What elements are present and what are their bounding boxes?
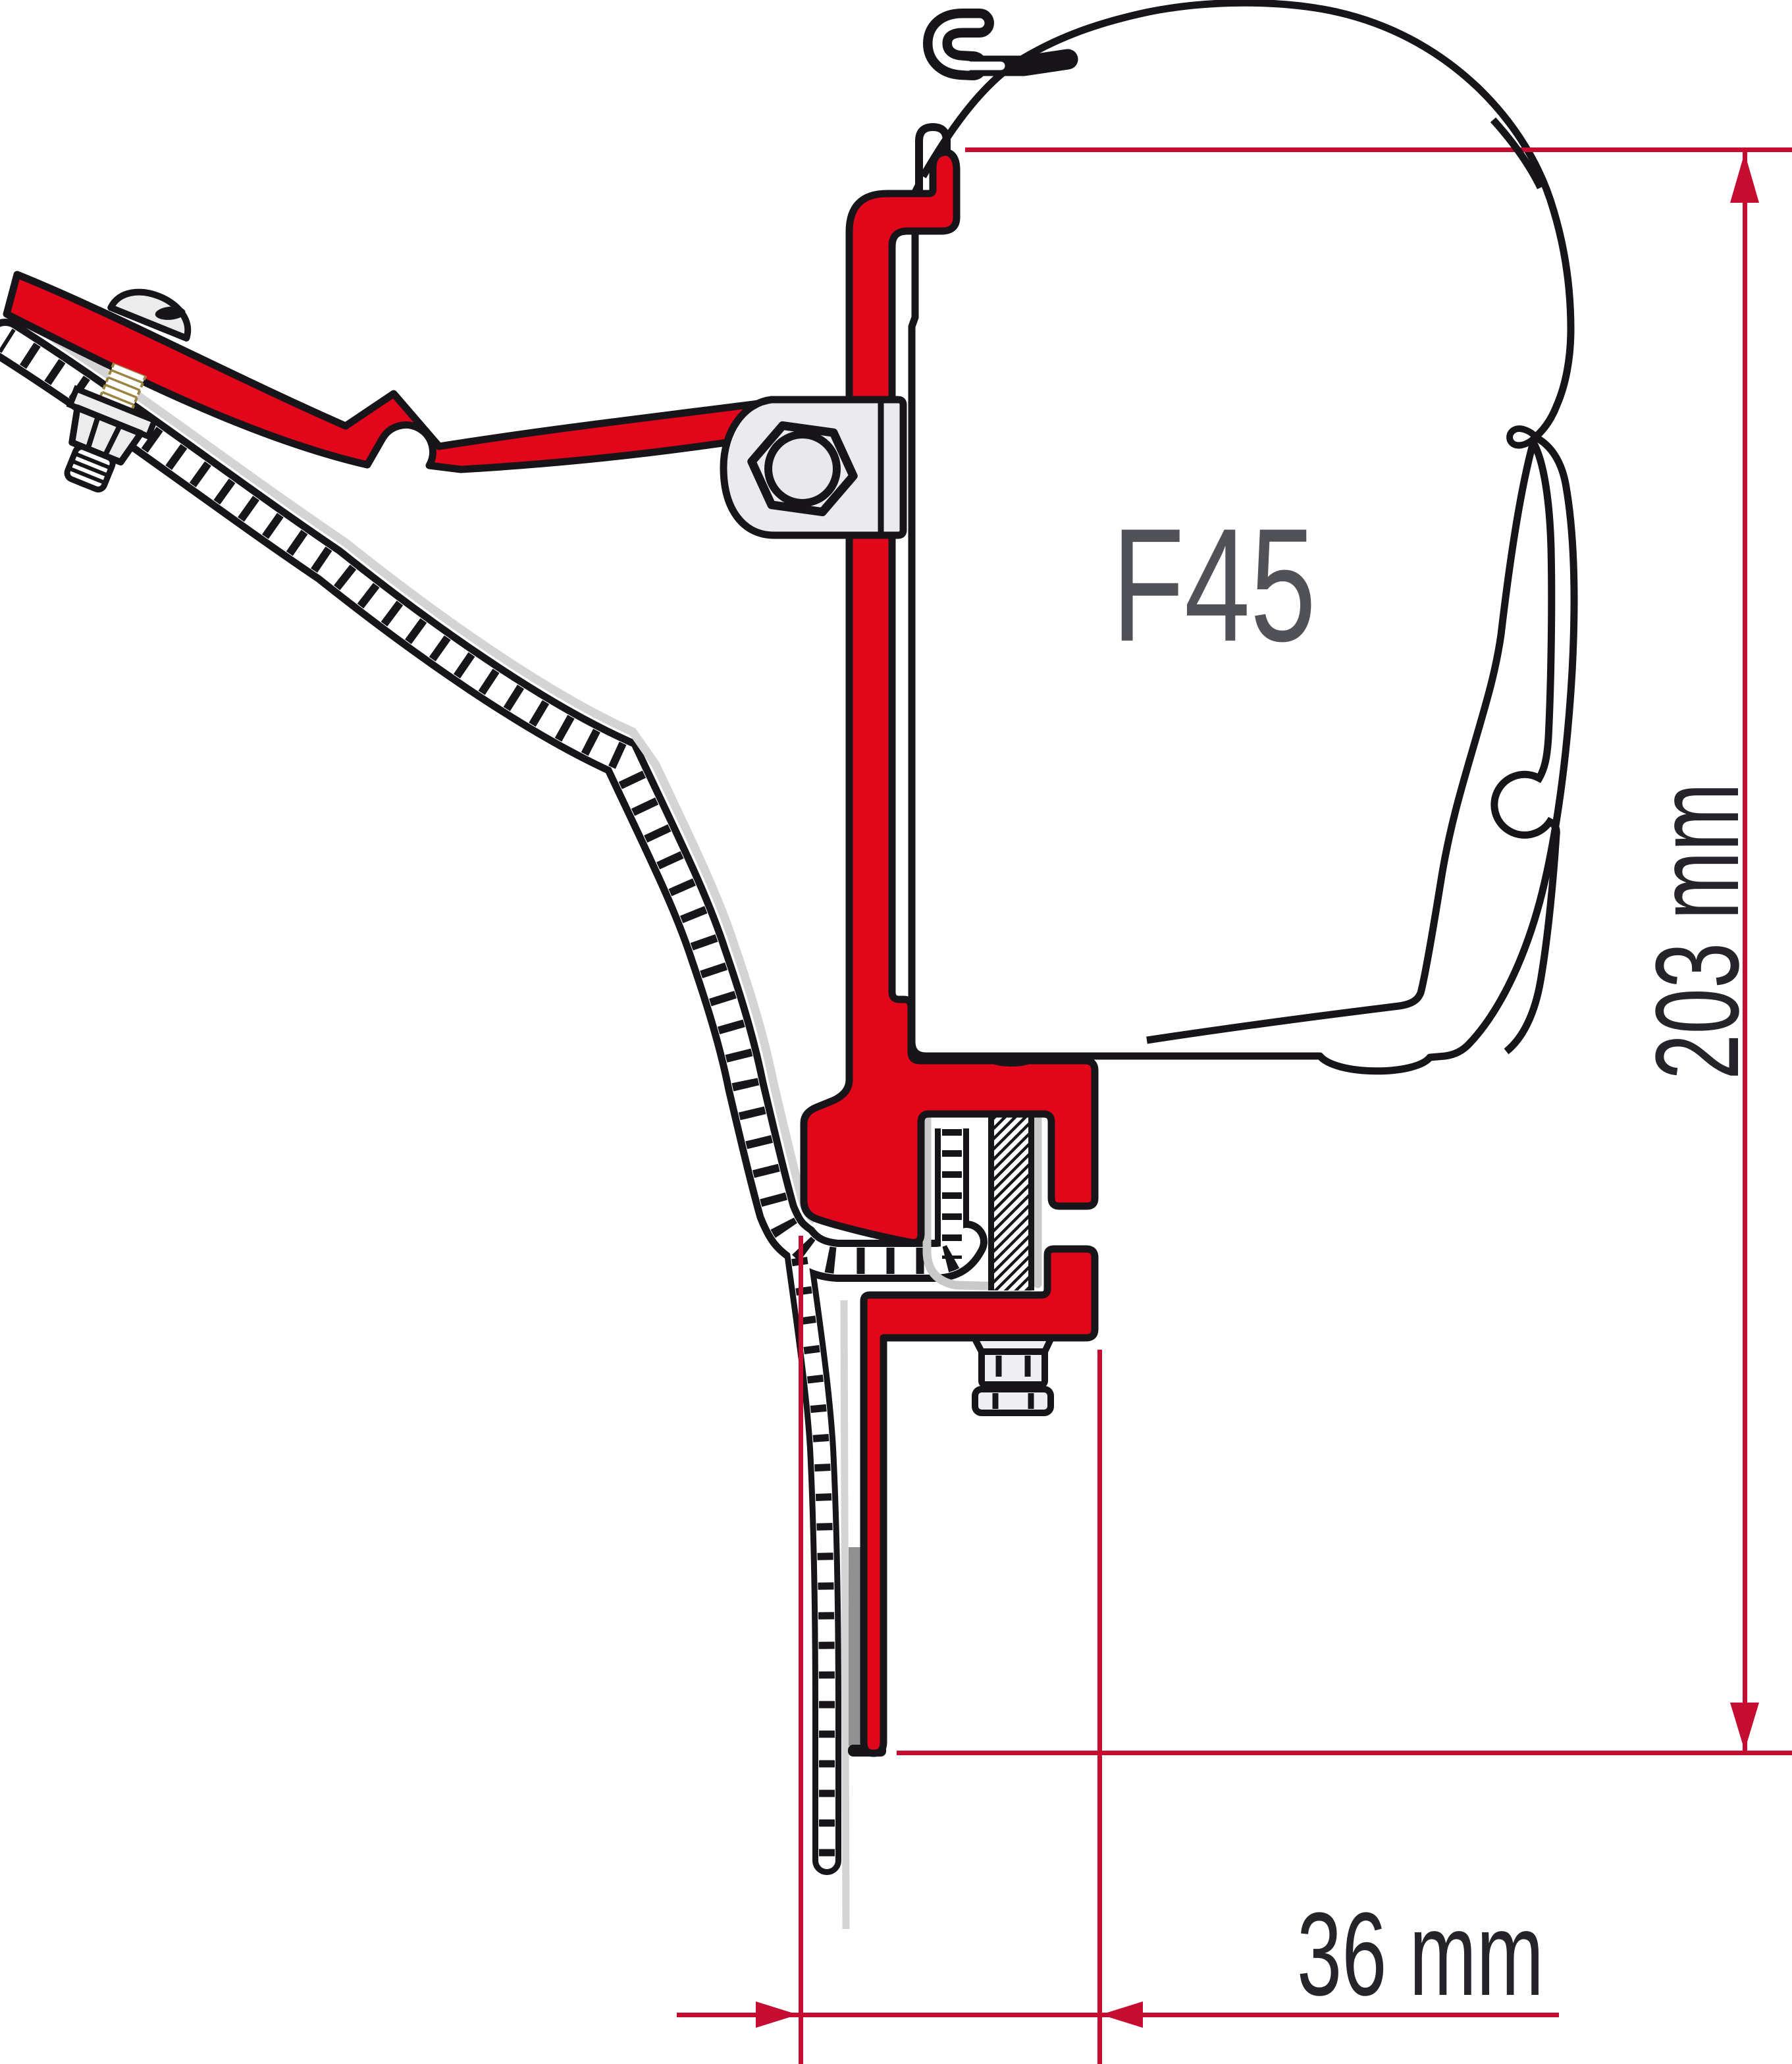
svg-text:36 mm: 36 mm xyxy=(1297,1888,1544,2021)
svg-text:203 mm: 203 mm xyxy=(1631,783,1764,1080)
svg-text:F45: F45 xyxy=(1112,494,1316,675)
